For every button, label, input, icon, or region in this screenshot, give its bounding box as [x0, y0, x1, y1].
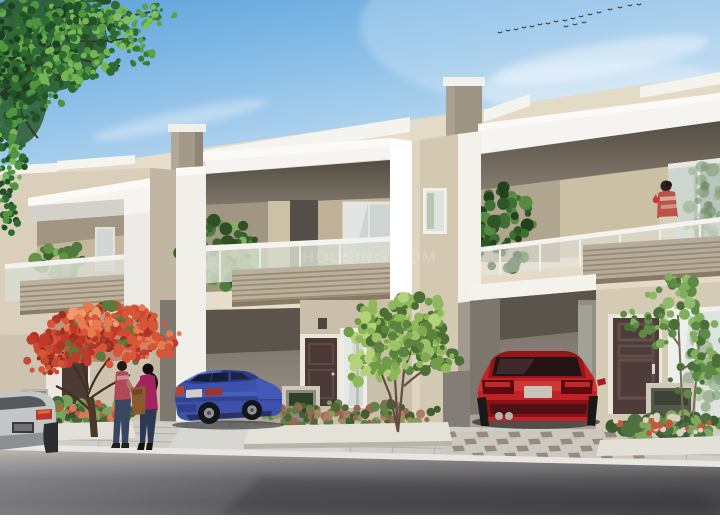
svg-text:HOUSING.COM: HOUSING.COM — [302, 248, 437, 267]
